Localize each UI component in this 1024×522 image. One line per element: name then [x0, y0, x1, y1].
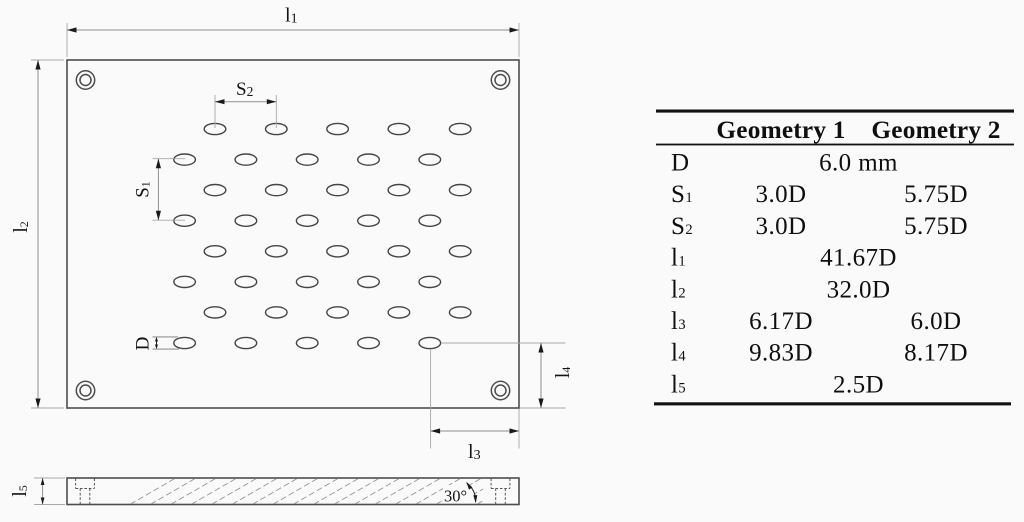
- svg-text:Geometry 1: Geometry 1: [716, 116, 845, 144]
- svg-text:6.17D: 6.17D: [749, 308, 813, 335]
- svg-text:6.0D: 6.0D: [911, 308, 962, 335]
- svg-text:D: D: [133, 337, 154, 351]
- svg-text:32.0D: 32.0D: [827, 276, 891, 303]
- svg-text:2.5D: 2.5D: [833, 371, 884, 398]
- svg-text:41.67D: 41.67D: [820, 245, 897, 272]
- svg-text:30°: 30°: [444, 487, 467, 506]
- svg-text:3.0D: 3.0D: [756, 181, 807, 208]
- svg-text:8.17D: 8.17D: [904, 340, 968, 367]
- svg-text:6.0 mm: 6.0 mm: [819, 150, 898, 177]
- svg-text:5.75D: 5.75D: [904, 181, 968, 208]
- svg-text:3.0D: 3.0D: [756, 213, 807, 240]
- svg-text:D: D: [671, 150, 689, 177]
- svg-text:9.83D: 9.83D: [749, 340, 813, 367]
- svg-text:Geometry 2: Geometry 2: [871, 116, 1000, 144]
- svg-text:5.75D: 5.75D: [904, 213, 968, 240]
